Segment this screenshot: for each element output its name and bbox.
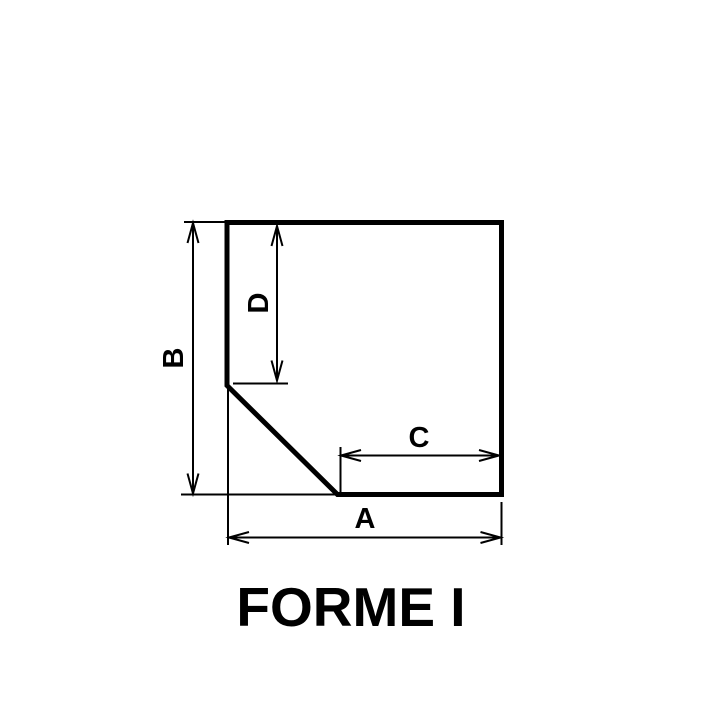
drawing-title: FORME I xyxy=(236,576,465,638)
dimension-c-label: C xyxy=(409,422,430,454)
shape-group xyxy=(227,223,502,495)
dimension-b-label: B xyxy=(158,348,190,369)
dimension-d-label: D xyxy=(243,293,275,314)
technical-drawing-page: B D C A FORME I xyxy=(0,0,720,720)
dimension-a-label: A xyxy=(355,503,376,535)
forme-i-diagram: B D C A FORME I xyxy=(0,0,720,720)
chamfered-square-outline xyxy=(227,223,502,495)
